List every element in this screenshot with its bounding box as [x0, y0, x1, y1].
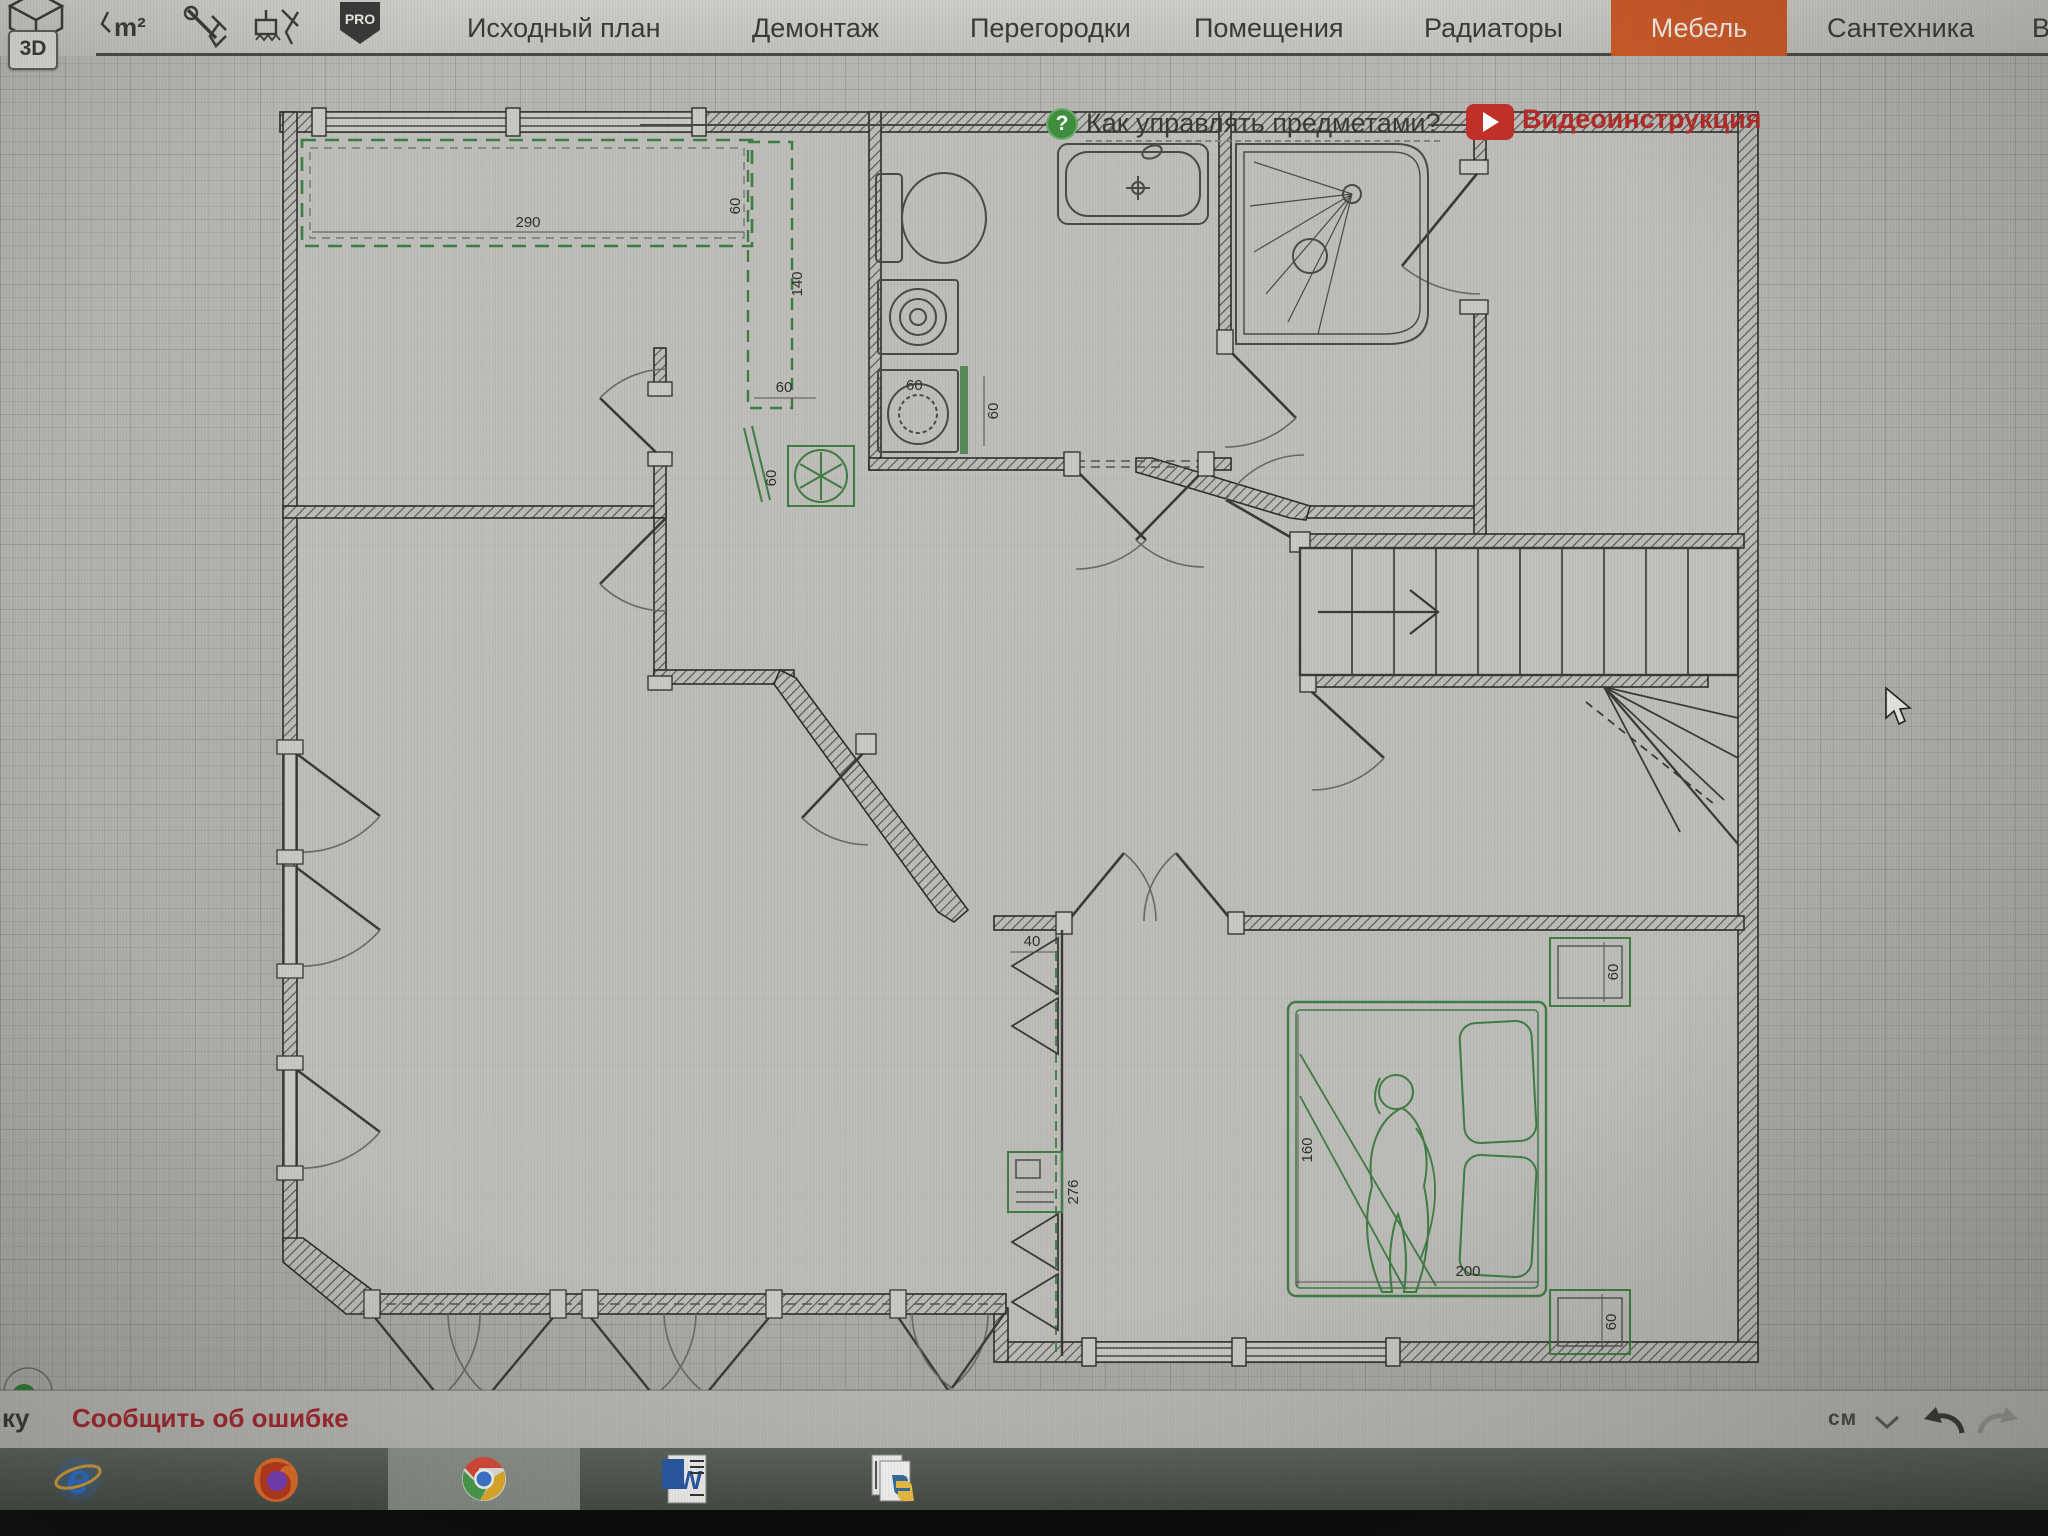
svg-text:140: 140	[789, 271, 806, 296]
status-left-text: ку	[2, 1403, 29, 1434]
svg-text:60: 60	[1603, 1314, 1620, 1331]
tools-icon[interactable]	[182, 2, 232, 52]
tab-demolition[interactable]: Демонтаж	[752, 0, 879, 56]
svg-text:60: 60	[1605, 964, 1622, 981]
svg-text:m²: m²	[114, 12, 146, 42]
question-circle-icon[interactable]: ?	[1046, 108, 1078, 140]
view-3d-button[interactable]: 3D	[8, 30, 58, 70]
windows-taskbar	[0, 1448, 2048, 1510]
staircase[interactable]	[1300, 548, 1738, 675]
youtube-play-icon[interactable]	[1466, 104, 1514, 140]
video-instruction-link[interactable]: Видеоинструкция	[1522, 104, 1762, 135]
tab-plumbing[interactable]: Сантехника	[1827, 0, 1974, 56]
floor-plan-drawing[interactable]: 60 60	[0, 56, 2048, 1390]
redo-icon[interactable]	[1976, 1405, 2020, 1439]
tab-partitions[interactable]: Перегородки	[970, 0, 1131, 56]
undo-icon[interactable]	[1922, 1405, 1966, 1439]
help-link[interactable]: Как управлять предметами?	[1086, 106, 1440, 142]
internet-explorer-icon[interactable]: e	[52, 1453, 104, 1505]
demolition-icon[interactable]	[252, 2, 306, 52]
svg-text:60: 60	[985, 403, 1002, 420]
chevron-down-icon[interactable]	[1872, 1413, 1902, 1431]
word-icon[interactable]: W	[660, 1453, 712, 1505]
svg-text:276: 276	[1065, 1179, 1082, 1204]
status-bar: ку Сообщить об ошибке см	[0, 1390, 2048, 1449]
svg-text:e: e	[66, 1455, 89, 1502]
callout-line	[640, 124, 1046, 126]
floorplan-editor-window: 60 60	[0, 0, 2048, 1536]
tab-original-plan[interactable]: Исходный план	[467, 0, 660, 56]
svg-text:60: 60	[763, 470, 780, 487]
tab-radiators[interactable]: Радиаторы	[1424, 0, 1563, 56]
svg-text:160: 160	[1299, 1137, 1316, 1162]
report-error-link[interactable]: Сообщить об ошибке	[72, 1403, 349, 1434]
chrome-icon[interactable]	[458, 1453, 510, 1505]
svg-text:200: 200	[1455, 1263, 1480, 1280]
location-marker-icon[interactable]	[4, 1368, 52, 1390]
svg-text:290: 290	[515, 214, 540, 231]
svg-text:PRO: PRO	[345, 11, 375, 27]
bath-cabinet[interactable]	[960, 366, 968, 454]
svg-text:60: 60	[727, 198, 744, 215]
area-measure-icon[interactable]: m²	[100, 2, 156, 52]
tab-rooms[interactable]: Помещения	[1194, 0, 1344, 56]
monitor-bezel	[0, 1510, 2048, 1536]
svg-text:W: W	[678, 1465, 703, 1495]
svg-text:40: 40	[1024, 933, 1041, 950]
pro-badge-icon[interactable]: PRO	[336, 0, 384, 48]
top-toolbar: 3D m² PRO Исходный план Демонтаж Перегор…	[0, 0, 2048, 56]
units-dropdown-value[interactable]: см	[1828, 1407, 1857, 1431]
firefox-icon[interactable]	[250, 1453, 302, 1505]
tab-furniture[interactable]: Мебель	[1611, 0, 1787, 56]
python-files-icon[interactable]	[868, 1453, 920, 1505]
svg-text:60: 60	[776, 379, 793, 396]
tab-truncated[interactable]: В	[2032, 0, 2048, 56]
svg-text:60: 60	[906, 377, 923, 394]
plan-canvas[interactable]: 60 60	[0, 56, 2048, 1390]
